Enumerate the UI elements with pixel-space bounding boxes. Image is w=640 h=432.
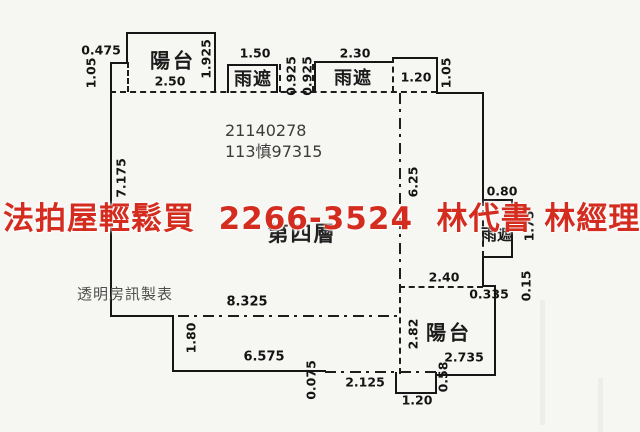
- dim-top-box-width: 1.20: [401, 70, 432, 85]
- dim-gap-b: 0.925: [300, 56, 315, 96]
- centerline-bottom: [325, 371, 436, 373]
- wall-canopy3-bottom: [482, 256, 513, 258]
- dim-balcony2-top-width: 2.40: [429, 270, 460, 285]
- maker-label: 透明房訊製表: [77, 283, 173, 304]
- wall-bottomleft-step-v: [172, 315, 174, 372]
- dim-balcony-top-height: 1.925: [199, 39, 214, 79]
- dashline-topbox-left: [392, 57, 394, 92]
- floor-plan-scan: 陽台 雨遮 雨遮 雨遮 陽台 第四層 0.475 1.05 2.50 1.925…: [0, 0, 640, 432]
- case-number-block: 21140278113慎97315: [225, 120, 322, 162]
- dim-left-wall-height: 7.175: [114, 158, 129, 198]
- dim-bottom-wall-length: 6.575: [243, 350, 284, 365]
- wall-balcony-left: [126, 32, 128, 64]
- dashline-balcony2-left: [399, 287, 401, 374]
- dim-step-width: 0.335: [469, 287, 509, 302]
- wall-right-upper: [482, 92, 484, 201]
- dashline-balcony-inner: [127, 62, 129, 92]
- room-label-canopy2: 雨遮: [334, 64, 372, 90]
- dim-balcony-top-width: 2.50: [155, 74, 186, 89]
- scan-artifact: [540, 300, 545, 425]
- wall-right-mid: [482, 256, 484, 287]
- wall-topleft-step: [110, 62, 128, 64]
- scan-artifact: [598, 378, 603, 432]
- centerline-right-inner: [399, 93, 401, 287]
- dim-gap-a: 0.925: [284, 56, 299, 96]
- wall-canopy2-top: [314, 61, 394, 63]
- dim-left-step-height: 1.80: [184, 323, 199, 354]
- dim-balcony2-left-height: 2.82: [406, 319, 421, 350]
- wall-balcony-top: [126, 32, 216, 34]
- case-number-line1: 21140278: [225, 121, 306, 140]
- dim-canopy2-width: 2.30: [340, 46, 371, 61]
- dim-step-height: 0.15: [519, 271, 534, 302]
- dashline-gap-a: [279, 64, 281, 92]
- case-number-line2: 113慎97315: [225, 142, 322, 161]
- dim-bottom-box-width: 1.20: [402, 393, 433, 408]
- wall-canopy1-left: [227, 64, 229, 93]
- dashline-top-wall: [110, 91, 437, 93]
- dim-inner-width: 8.325: [226, 295, 267, 310]
- wall-balcony-right: [214, 32, 216, 93]
- room-label-canopy1: 雨遮: [234, 65, 272, 91]
- agent-watermark: 法拍屋輕鬆買 2266-3524 林代書 林經理: [3, 193, 640, 238]
- wall-left: [110, 62, 112, 317]
- dim-top-left-height: 1.05: [84, 58, 99, 89]
- wall-topbox-top: [392, 57, 438, 59]
- wall-top-right: [436, 92, 484, 94]
- dim-bottom-box-height: 0.58: [436, 362, 451, 393]
- dim-top-right-height: 1.05: [439, 58, 454, 89]
- dim-bottom-gap: 2.125: [345, 375, 385, 390]
- dim-top-left-width: 0.475: [81, 43, 121, 58]
- dim-tiny-step: 0.075: [304, 360, 319, 400]
- room-label-balcony-bottom: 陽台: [426, 317, 472, 346]
- wall-bottombox-left: [395, 372, 397, 394]
- dim-canopy1-width: 1.50: [240, 46, 271, 61]
- wall-canopy1-right: [276, 64, 278, 93]
- wall-bottomleft-step-h: [110, 315, 174, 317]
- centerline-inner-width: [178, 315, 399, 317]
- room-label-balcony-top: 陽台: [150, 45, 196, 74]
